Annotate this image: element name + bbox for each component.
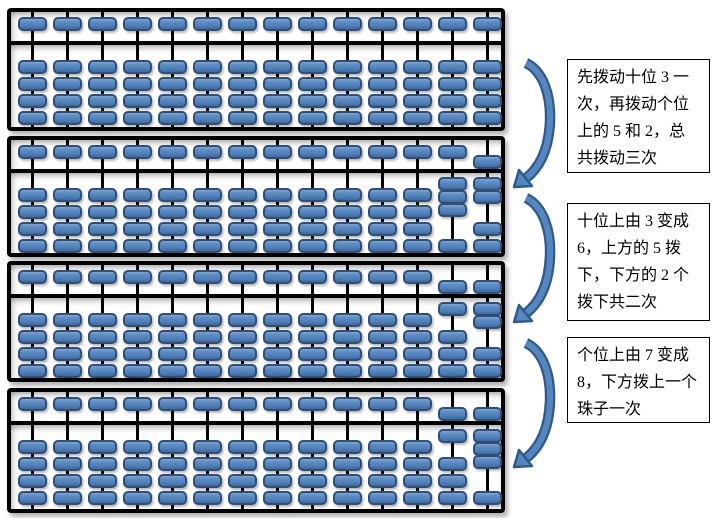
earth-bead xyxy=(368,239,397,253)
heaven-bead xyxy=(333,145,362,159)
earth-bead xyxy=(333,440,362,454)
earth-bead xyxy=(473,177,502,191)
earth-bead xyxy=(193,330,222,344)
earth-bead xyxy=(123,313,152,327)
earth-bead xyxy=(298,111,327,125)
earth-bead xyxy=(368,440,397,454)
heaven-bead xyxy=(88,270,117,284)
earth-bead xyxy=(403,457,432,471)
earth-bead xyxy=(53,205,82,219)
heaven-bead xyxy=(228,17,257,31)
earth-bead xyxy=(263,60,292,74)
earth-bead xyxy=(368,94,397,108)
heaven-bead xyxy=(53,397,82,411)
earth-bead xyxy=(53,457,82,471)
earth-bead xyxy=(298,440,327,454)
earth-bead xyxy=(263,111,292,125)
earth-bead xyxy=(123,111,152,125)
earth-bead xyxy=(53,94,82,108)
heaven-bead xyxy=(263,270,292,284)
earth-bead xyxy=(123,222,152,236)
earth-bead xyxy=(123,330,152,344)
earth-bead xyxy=(403,440,432,454)
earth-bead xyxy=(53,364,82,378)
earth-bead xyxy=(368,364,397,378)
earth-bead xyxy=(158,330,187,344)
earth-bead xyxy=(123,491,152,505)
earth-bead xyxy=(123,347,152,361)
earth-bead xyxy=(298,457,327,471)
lower-deck xyxy=(11,425,501,509)
earth-bead xyxy=(263,94,292,108)
heaven-bead xyxy=(53,17,82,31)
earth-bead xyxy=(333,94,362,108)
earth-bead xyxy=(88,77,117,91)
heaven-bead xyxy=(53,270,82,284)
diagram-canvas: 先拨动十位 3 一 次，再拨动个位 上的 5 和 2，总 共拨动三次 十位上由 … xyxy=(0,0,718,518)
earth-bead xyxy=(368,60,397,74)
earth-bead xyxy=(368,491,397,505)
heaven-bead xyxy=(298,270,327,284)
earth-bead xyxy=(298,77,327,91)
earth-bead xyxy=(193,188,222,202)
earth-bead xyxy=(298,313,327,327)
earth-bead xyxy=(333,347,362,361)
earth-bead xyxy=(298,222,327,236)
earth-bead xyxy=(228,239,257,253)
heaven-bead xyxy=(333,270,362,284)
earth-bead xyxy=(193,60,222,74)
heaven-bead xyxy=(88,397,117,411)
heaven-bead xyxy=(473,155,502,169)
earth-bead xyxy=(193,205,222,219)
earth-bead xyxy=(403,205,432,219)
earth-bead xyxy=(88,364,117,378)
earth-bead xyxy=(438,429,467,443)
heaven-bead xyxy=(158,17,187,31)
upper-deck xyxy=(11,140,501,169)
earth-bead xyxy=(53,111,82,125)
earth-bead xyxy=(158,491,187,505)
earth-bead xyxy=(123,364,152,378)
earth-bead xyxy=(18,330,47,344)
earth-bead xyxy=(473,315,502,329)
earth-bead xyxy=(18,239,47,253)
earth-bead xyxy=(438,111,467,125)
earth-bead xyxy=(18,60,47,74)
heaven-bead xyxy=(123,17,152,31)
earth-bead xyxy=(53,313,82,327)
earth-bead xyxy=(158,111,187,125)
earth-bead xyxy=(228,491,257,505)
earth-bead xyxy=(193,457,222,471)
earth-bead xyxy=(438,364,467,378)
earth-bead xyxy=(18,205,47,219)
heaven-bead xyxy=(123,145,152,159)
earth-bead xyxy=(333,205,362,219)
earth-bead xyxy=(403,313,432,327)
earth-bead xyxy=(438,77,467,91)
earth-bead xyxy=(158,205,187,219)
heaven-bead xyxy=(473,280,502,294)
heaven-bead xyxy=(228,270,257,284)
earth-bead xyxy=(333,60,362,74)
earth-bead xyxy=(18,222,47,236)
earth-bead xyxy=(263,491,292,505)
earth-bead xyxy=(333,222,362,236)
earth-bead xyxy=(88,222,117,236)
upper-deck xyxy=(11,392,501,421)
heaven-bead xyxy=(228,397,257,411)
earth-bead xyxy=(263,457,292,471)
earth-bead xyxy=(298,94,327,108)
earth-bead xyxy=(158,77,187,91)
earth-bead xyxy=(158,222,187,236)
earth-bead xyxy=(438,94,467,108)
earth-bead xyxy=(228,188,257,202)
earth-bead xyxy=(368,77,397,91)
earth-bead xyxy=(333,491,362,505)
earth-bead xyxy=(263,474,292,488)
earth-bead xyxy=(368,347,397,361)
annotation-step-1: 先拨动十位 3 一 次，再拨动个位 上的 5 和 2，总 共拨动三次 xyxy=(567,59,710,173)
earth-bead xyxy=(193,491,222,505)
heaven-bead xyxy=(158,270,187,284)
earth-bead xyxy=(298,60,327,74)
heaven-bead xyxy=(18,145,47,159)
earth-bead xyxy=(438,347,467,361)
earth-bead xyxy=(158,347,187,361)
earth-bead xyxy=(403,77,432,91)
upper-deck xyxy=(11,12,501,41)
earth-bead xyxy=(403,222,432,236)
earth-bead xyxy=(53,188,82,202)
earth-bead xyxy=(263,77,292,91)
earth-bead xyxy=(368,474,397,488)
earth-bead xyxy=(368,205,397,219)
earth-bead xyxy=(228,313,257,327)
earth-bead xyxy=(438,203,467,217)
earth-bead xyxy=(263,239,292,253)
earth-bead xyxy=(193,239,222,253)
earth-bead xyxy=(123,440,152,454)
heaven-bead xyxy=(438,280,467,294)
earth-bead xyxy=(18,94,47,108)
earth-bead xyxy=(298,239,327,253)
earth-bead xyxy=(123,77,152,91)
earth-bead xyxy=(333,188,362,202)
earth-bead xyxy=(18,364,47,378)
earth-bead xyxy=(53,491,82,505)
earth-bead xyxy=(228,60,257,74)
heaven-bead xyxy=(368,17,397,31)
earth-bead xyxy=(158,188,187,202)
earth-bead xyxy=(438,190,467,204)
earth-bead xyxy=(298,330,327,344)
earth-bead xyxy=(193,313,222,327)
heaven-bead xyxy=(438,17,467,31)
earth-bead xyxy=(53,60,82,74)
heaven-bead xyxy=(158,145,187,159)
lower-deck xyxy=(11,298,501,378)
earth-bead xyxy=(53,77,82,91)
earth-bead xyxy=(438,491,467,505)
earth-bead xyxy=(228,440,257,454)
earth-bead xyxy=(88,440,117,454)
earth-bead xyxy=(158,440,187,454)
earth-bead xyxy=(228,205,257,219)
heaven-bead xyxy=(403,17,432,31)
heaven-bead xyxy=(193,17,222,31)
heaven-bead xyxy=(158,397,187,411)
earth-bead xyxy=(473,239,502,253)
earth-bead xyxy=(228,347,257,361)
earth-bead xyxy=(438,474,467,488)
earth-bead xyxy=(123,239,152,253)
earth-bead xyxy=(158,457,187,471)
earth-bead xyxy=(88,111,117,125)
heaven-bead xyxy=(298,145,327,159)
abacus-state-initial xyxy=(7,8,505,131)
heaven-bead xyxy=(193,270,222,284)
earth-bead xyxy=(298,474,327,488)
heaven-bead xyxy=(53,145,82,159)
heaven-bead xyxy=(333,17,362,31)
earth-bead xyxy=(88,94,117,108)
heaven-bead xyxy=(298,397,327,411)
earth-bead xyxy=(473,190,502,204)
heaven-bead xyxy=(473,407,502,421)
earth-bead xyxy=(473,94,502,108)
heaven-bead xyxy=(333,397,362,411)
earth-bead xyxy=(333,474,362,488)
earth-bead xyxy=(228,222,257,236)
earth-bead xyxy=(193,222,222,236)
earth-bead xyxy=(368,111,397,125)
earth-bead xyxy=(158,474,187,488)
earth-bead xyxy=(53,347,82,361)
upper-deck xyxy=(11,265,501,294)
earth-bead xyxy=(473,364,502,378)
heaven-bead xyxy=(473,17,502,31)
earth-bead xyxy=(158,60,187,74)
earth-bead xyxy=(333,77,362,91)
earth-bead xyxy=(88,239,117,253)
earth-bead xyxy=(158,94,187,108)
earth-bead xyxy=(438,60,467,74)
earth-bead xyxy=(438,177,467,191)
earth-bead xyxy=(123,205,152,219)
heaven-bead xyxy=(193,145,222,159)
earth-bead xyxy=(123,457,152,471)
earth-bead xyxy=(403,60,432,74)
earth-bead xyxy=(298,205,327,219)
earth-bead xyxy=(193,347,222,361)
earth-bead xyxy=(88,188,117,202)
heaven-bead xyxy=(438,145,467,159)
earth-bead xyxy=(368,330,397,344)
earth-bead xyxy=(193,111,222,125)
earth-bead xyxy=(228,474,257,488)
earth-bead xyxy=(473,347,502,361)
heaven-bead xyxy=(88,17,117,31)
curved-arrow-down-icon xyxy=(509,55,557,195)
annotation-step-3: 个位上由 7 变成 8，下方拨上一个 珠子一次 xyxy=(567,337,710,423)
earth-bead xyxy=(473,222,502,236)
earth-bead xyxy=(473,491,502,505)
earth-bead xyxy=(88,347,117,361)
lower-deck xyxy=(11,173,501,253)
curved-arrow-down-icon xyxy=(509,190,557,330)
lower-deck xyxy=(11,45,501,127)
earth-bead xyxy=(263,313,292,327)
earth-bead xyxy=(18,313,47,327)
earth-bead xyxy=(158,313,187,327)
earth-bead xyxy=(333,239,362,253)
heaven-bead xyxy=(88,145,117,159)
earth-bead xyxy=(88,313,117,327)
earth-bead xyxy=(18,188,47,202)
earth-bead xyxy=(368,313,397,327)
abacus-state-after-step-1 xyxy=(7,136,505,257)
earth-bead xyxy=(403,347,432,361)
earth-bead xyxy=(228,111,257,125)
earth-bead xyxy=(228,77,257,91)
heaven-bead xyxy=(403,145,432,159)
earth-bead xyxy=(473,442,502,456)
abacus-state-after-step-3 xyxy=(7,388,505,513)
earth-bead xyxy=(298,364,327,378)
earth-bead xyxy=(333,330,362,344)
earth-bead xyxy=(473,302,502,316)
earth-bead xyxy=(158,239,187,253)
earth-bead xyxy=(403,330,432,344)
earth-bead xyxy=(438,330,467,344)
earth-bead xyxy=(88,330,117,344)
earth-bead xyxy=(193,474,222,488)
heaven-bead xyxy=(193,397,222,411)
earth-bead xyxy=(473,111,502,125)
earth-bead xyxy=(18,474,47,488)
earth-bead xyxy=(333,364,362,378)
earth-bead xyxy=(123,60,152,74)
earth-bead xyxy=(403,364,432,378)
earth-bead xyxy=(53,239,82,253)
annotation-step-2: 十位上由 3 变成 6，上方的 5 拨 下，下方的 2 个 拨下共二次 xyxy=(567,203,710,321)
earth-bead xyxy=(368,222,397,236)
earth-bead xyxy=(18,440,47,454)
earth-bead xyxy=(403,239,432,253)
earth-bead xyxy=(193,440,222,454)
heaven-bead xyxy=(18,270,47,284)
earth-bead xyxy=(193,77,222,91)
earth-bead xyxy=(263,330,292,344)
earth-bead xyxy=(368,188,397,202)
earth-bead xyxy=(193,364,222,378)
heaven-bead xyxy=(368,270,397,284)
heaven-bead xyxy=(18,397,47,411)
earth-bead xyxy=(403,94,432,108)
heaven-bead xyxy=(123,397,152,411)
earth-bead xyxy=(438,457,467,471)
earth-bead xyxy=(333,313,362,327)
heaven-bead xyxy=(18,17,47,31)
earth-bead xyxy=(123,188,152,202)
earth-bead xyxy=(298,491,327,505)
earth-bead xyxy=(193,94,222,108)
earth-bead xyxy=(228,364,257,378)
earth-bead xyxy=(53,330,82,344)
heaven-bead xyxy=(368,145,397,159)
earth-bead xyxy=(228,94,257,108)
earth-bead xyxy=(88,457,117,471)
heaven-bead xyxy=(123,270,152,284)
earth-bead xyxy=(263,364,292,378)
heaven-bead xyxy=(263,17,292,31)
earth-bead xyxy=(403,491,432,505)
earth-bead xyxy=(368,457,397,471)
earth-bead xyxy=(403,188,432,202)
earth-bead xyxy=(473,60,502,74)
earth-bead xyxy=(298,188,327,202)
earth-bead xyxy=(263,205,292,219)
earth-bead xyxy=(53,222,82,236)
heaven-bead xyxy=(263,397,292,411)
abacus-state-after-step-2 xyxy=(7,261,505,382)
earth-bead xyxy=(333,111,362,125)
earth-bead xyxy=(403,111,432,125)
earth-bead xyxy=(473,429,502,443)
earth-bead xyxy=(18,457,47,471)
heaven-bead xyxy=(298,17,327,31)
heaven-bead xyxy=(403,397,432,411)
earth-bead xyxy=(88,474,117,488)
earth-bead xyxy=(263,188,292,202)
earth-bead xyxy=(18,347,47,361)
earth-bead xyxy=(123,474,152,488)
earth-bead xyxy=(18,111,47,125)
earth-bead xyxy=(88,60,117,74)
earth-bead xyxy=(438,302,467,316)
earth-bead xyxy=(263,347,292,361)
earth-bead xyxy=(403,474,432,488)
heaven-bead xyxy=(438,407,467,421)
heaven-bead xyxy=(228,145,257,159)
earth-bead xyxy=(228,457,257,471)
heaven-bead xyxy=(403,270,432,284)
earth-bead xyxy=(18,491,47,505)
earth-bead xyxy=(123,94,152,108)
heaven-bead xyxy=(368,397,397,411)
heaven-bead xyxy=(263,145,292,159)
earth-bead xyxy=(88,205,117,219)
earth-bead xyxy=(263,222,292,236)
earth-bead xyxy=(473,455,502,469)
earth-bead xyxy=(53,440,82,454)
earth-bead xyxy=(263,440,292,454)
earth-bead xyxy=(333,457,362,471)
earth-bead xyxy=(53,474,82,488)
earth-bead xyxy=(18,77,47,91)
earth-bead xyxy=(228,330,257,344)
earth-bead xyxy=(298,347,327,361)
earth-bead xyxy=(438,239,467,253)
curved-arrow-down-icon xyxy=(509,335,557,475)
earth-bead xyxy=(473,77,502,91)
earth-bead xyxy=(88,491,117,505)
earth-bead xyxy=(158,364,187,378)
